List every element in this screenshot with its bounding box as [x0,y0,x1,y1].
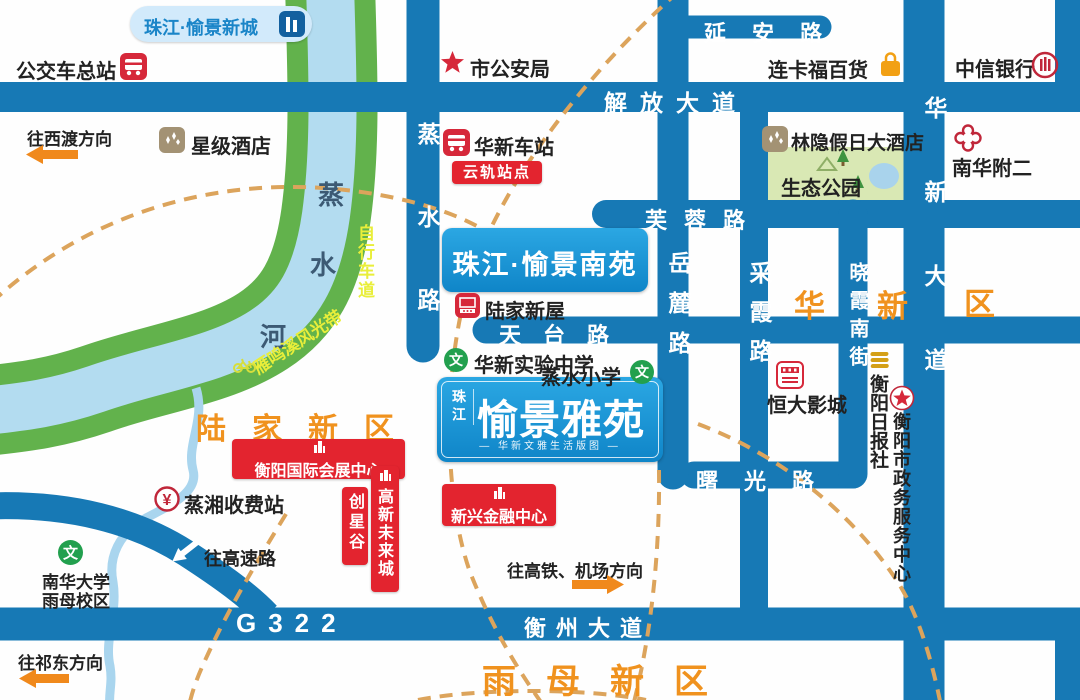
hotel-star-icon [159,127,185,153]
poi-department-store: 连卡福百货 [768,54,868,83]
yen-char: ¥ [163,492,172,509]
hospital-cross-icon [954,124,982,152]
red-seal-icon [455,293,480,318]
poi-huaxin-station: 华新车站 [474,131,554,160]
project-badge-xincheng: 珠江·愉景新城 [130,6,312,42]
building-icon [492,486,506,500]
road-label-caixia: 采霞路 [742,261,776,378]
poi-nanhua-hospital: 南华附二 [952,152,1032,181]
project-yayuan-brand: 珠江 [449,389,474,425]
river-name-char: 蒸 [318,175,344,212]
badge-chuangxinggu-label: 创星谷 [342,493,366,553]
poi-zhengshui-school: 蒸水小学 [541,361,621,390]
district-huaxin-char: 区 [964,279,995,324]
river-name-char: 水 [310,245,336,282]
school-icon-char: 文 [63,544,79,562]
school-icon: 文 [443,347,469,373]
poi-linyin-hotel: 林隐假日大酒店 [791,128,924,155]
poi-police: 市公安局 [470,53,550,82]
arrow-left-icon [19,669,69,688]
district-huaxin-char: 华 [794,281,825,326]
project-nanyuan-label: 珠江·愉景南苑 [442,243,648,282]
poi-lujia-xinwu: 陆家新屋 [485,295,565,324]
gov-star-icon [889,385,915,411]
badge-gaoxin-city: 高新未来城 [371,466,399,592]
poi-bus-terminal: 公交车总站 [16,55,116,84]
location-map: 延安路 解放大道 芙蓉路 天台路 曙光路 G322 衡州大道 蒸水路 岳麓路 采… [0,0,1080,700]
project-yayuan-tagline: — 华新文雅生活版图 — [437,437,663,452]
toll-yen-icon: ¥ [154,486,180,512]
bus-icon [120,53,147,80]
badge-chuangxinggu: 创星谷 [342,487,368,565]
building-icon [278,10,306,38]
poi-citic-bank: 中信银行 [955,53,1035,82]
poi-eco-park: 生态公园 [781,172,861,201]
road-label-g322: G322 [236,608,348,639]
building-icon [312,440,326,454]
shopping-bag-icon [877,51,904,78]
bike-greenway-label-2: 自行车道 [352,224,377,300]
road-label-hengzhou: 衡州大道 [524,611,652,643]
bike-icon [233,357,257,374]
school-icon-char: 文 [449,352,464,368]
school-icon: 文 [57,539,84,566]
badge-yungui-station: 云轨站点 [452,161,542,184]
bus-icon [443,129,470,156]
school-icon: 文 [629,359,655,385]
badge-fin-label: 新兴金融中心 [442,503,556,527]
badge-gaoxin-label: 高新未来城 [371,488,395,578]
school-icon-char: 文 [635,364,650,380]
road-label-zhengshui: 蒸水路 [410,122,444,371]
road-label-shuguang: 曙光路 [696,464,840,496]
road-label-jiefang: 解放大道 [604,84,748,118]
newspaper-icon [869,350,892,371]
poi-cinema: 恒大影城 [767,389,847,418]
poi-gov-center: 衡阳市政务服务中心 [888,412,914,583]
arrow-right-icon [572,575,624,594]
direction-gaosu: 往高速路 [204,545,276,571]
road-label-furong: 芙蓉路 [645,203,762,235]
road-label-yuelu: 岳麓路 [661,251,695,371]
cinema-icon [776,361,804,389]
road-label-xiaoxia: 晓霞南街 [843,262,872,374]
badge-fin-center: 新兴金融中心 [442,484,556,526]
project-badge-nanyuan: 珠江·愉景南苑 [442,228,648,292]
building-icon [379,469,392,482]
citic-bank-icon [1031,51,1059,79]
road-label-yanan: 延安路 [704,16,848,48]
district-yumu: 雨母新区 [482,654,738,700]
star-icon [441,51,464,74]
hotel-star-icon [762,126,788,152]
poi-toll-station: 蒸湘收费站 [184,489,284,518]
arrow-left-icon [26,145,78,164]
poi-daily-press: 衡阳日报社 [864,374,891,469]
project-xincheng-label: 珠江·愉景新城 [144,14,258,40]
district-huaxin-char: 新 [877,281,908,326]
poi-hotel: 星级酒店 [191,130,271,159]
poi-nanhua-univ-line2: 雨母校区 [42,587,110,612]
